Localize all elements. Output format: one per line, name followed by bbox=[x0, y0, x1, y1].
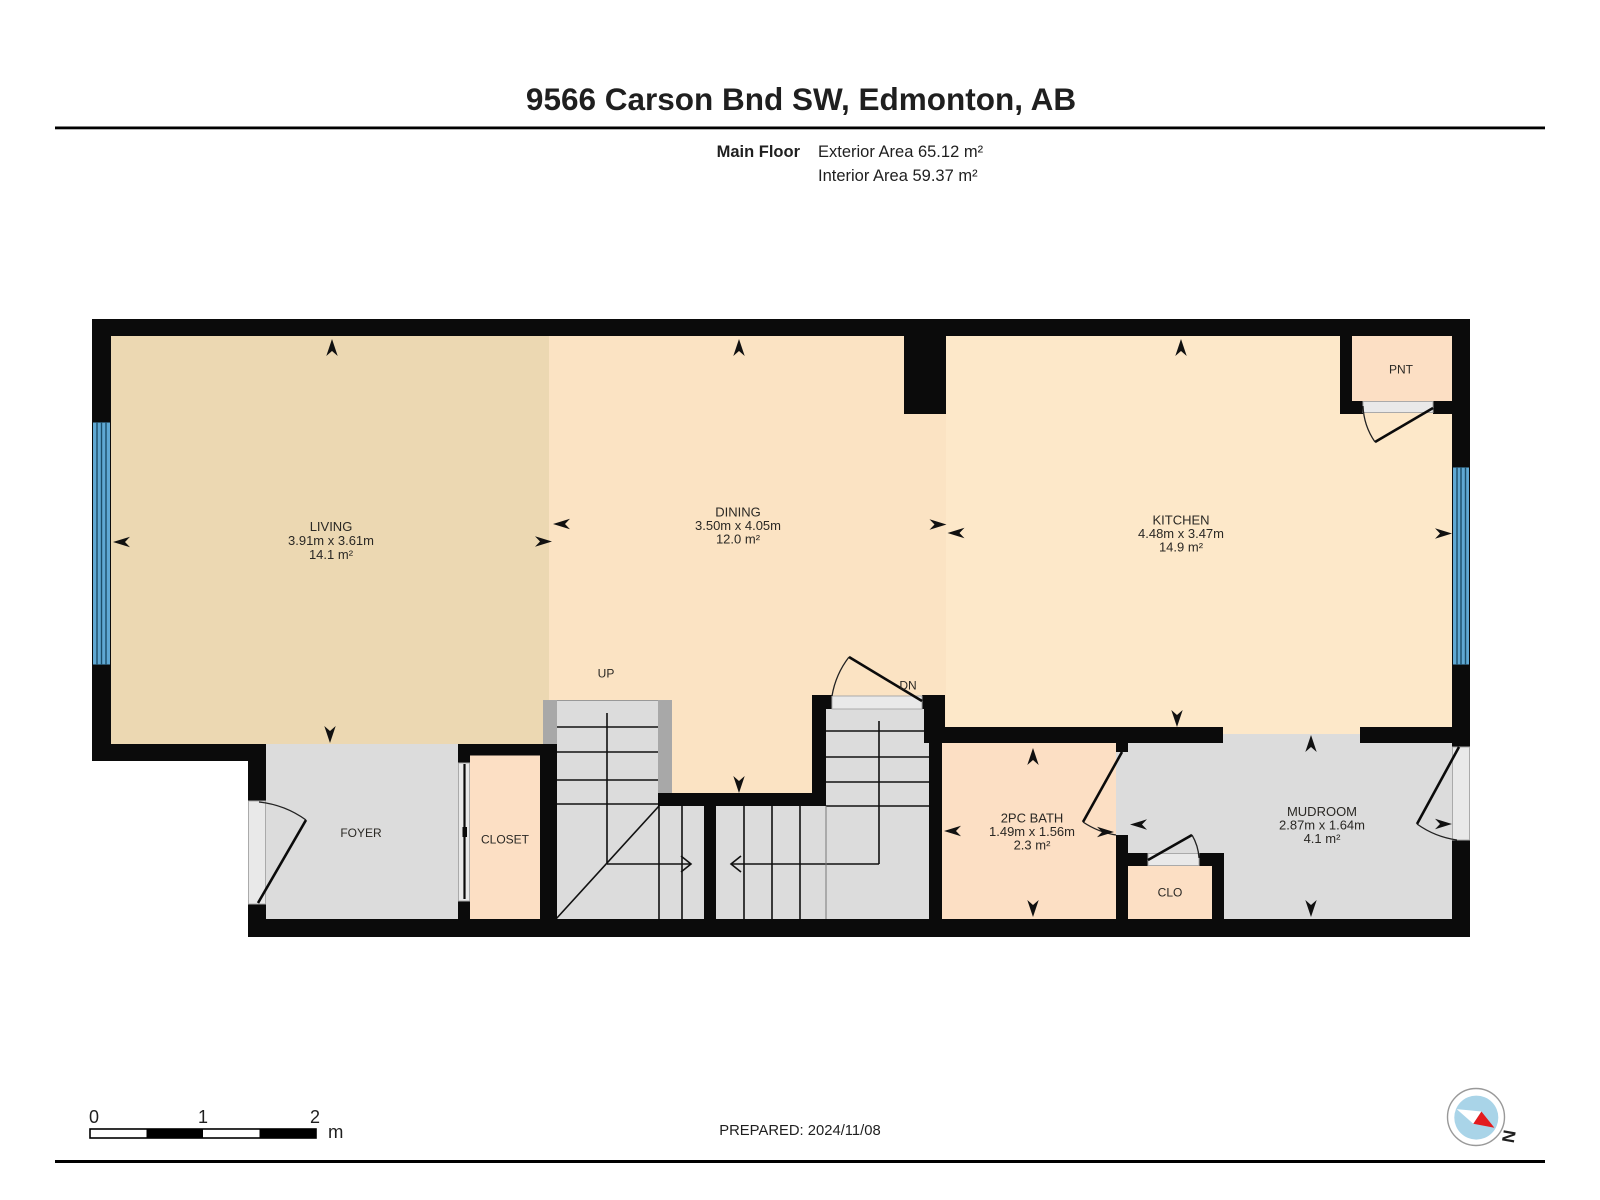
svg-text:DN: DN bbox=[899, 679, 916, 693]
svg-text:CLO: CLO bbox=[1158, 886, 1183, 900]
svg-text:12.0 m²: 12.0 m² bbox=[716, 532, 761, 547]
svg-text:Interior Area 59.37 m²: Interior Area 59.37 m² bbox=[818, 167, 978, 185]
svg-text:UP: UP bbox=[598, 667, 615, 681]
svg-text:m: m bbox=[328, 1121, 343, 1142]
svg-text:CLOSET: CLOSET bbox=[481, 833, 530, 847]
svg-text:14.1 m²: 14.1 m² bbox=[309, 547, 354, 562]
svg-text:9566 Carson Bnd SW, Edmonton,: 9566 Carson Bnd SW, Edmonton, AB bbox=[526, 81, 1076, 117]
svg-text:14.9 m²: 14.9 m² bbox=[1159, 540, 1204, 555]
svg-text:PNT: PNT bbox=[1389, 363, 1414, 377]
svg-text:2.3 m²: 2.3 m² bbox=[1014, 838, 1052, 853]
svg-text:2: 2 bbox=[310, 1107, 320, 1127]
svg-text:3.91m x 3.61m: 3.91m x 3.61m bbox=[288, 533, 374, 548]
svg-text:FOYER: FOYER bbox=[340, 826, 382, 840]
svg-text:PREPARED: 2024/11/08: PREPARED: 2024/11/08 bbox=[719, 1123, 881, 1139]
svg-text:1: 1 bbox=[198, 1107, 208, 1127]
svg-text:Main Floor: Main Floor bbox=[717, 143, 801, 161]
svg-text:Exterior Area 65.12 m²: Exterior Area 65.12 m² bbox=[818, 143, 984, 161]
svg-text:0: 0 bbox=[89, 1107, 99, 1127]
svg-text:4.1 m²: 4.1 m² bbox=[1304, 831, 1342, 846]
svg-text:LIVING: LIVING bbox=[310, 519, 353, 534]
